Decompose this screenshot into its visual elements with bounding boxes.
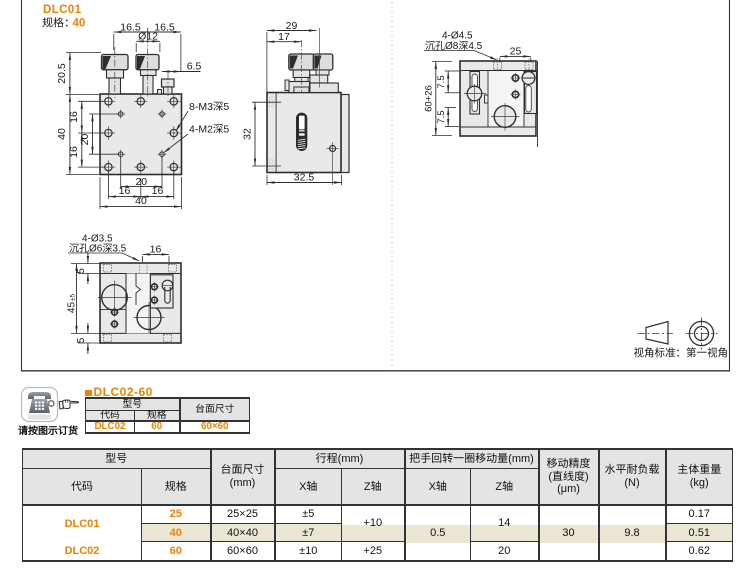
svg-text:40: 40 [56, 128, 68, 140]
svg-text:16: 16 [150, 244, 162, 256]
svg-text:16: 16 [152, 185, 164, 197]
svg-text:规格：: 规格： [42, 17, 75, 30]
svg-text:20.5: 20.5 [56, 63, 68, 84]
svg-text:Ø12: Ø12 [138, 30, 158, 42]
svg-text:7.5: 7.5 [436, 110, 447, 123]
svg-text:视角标准：第一视角: 视角标准：第一视角 [634, 347, 729, 360]
svg-text:±5: ±5 [70, 294, 77, 302]
svg-text:7.5: 7.5 [436, 75, 447, 88]
svg-text:40: 40 [73, 17, 86, 29]
svg-text:4-Ø4.5: 4-Ø4.5 [442, 31, 473, 42]
svg-text:17: 17 [278, 31, 290, 43]
svg-text:45: 45 [66, 302, 77, 314]
svg-text:40: 40 [135, 195, 147, 207]
svg-text:5: 5 [76, 268, 87, 274]
svg-text:25: 25 [510, 46, 522, 58]
svg-text:32: 32 [241, 128, 253, 140]
svg-text:16: 16 [119, 185, 131, 197]
svg-text:4-M2深5: 4-M2深5 [189, 124, 229, 136]
svg-text:20: 20 [79, 134, 91, 146]
svg-text:5: 5 [76, 337, 87, 343]
svg-text:32.5: 32.5 [294, 172, 315, 184]
svg-text:6.5: 6.5 [187, 61, 202, 73]
svg-text:60+26: 60+26 [423, 85, 434, 112]
svg-text:20: 20 [135, 176, 147, 188]
svg-text:16: 16 [68, 111, 80, 123]
svg-text:8-M3深5: 8-M3深5 [189, 101, 229, 113]
svg-text:16: 16 [68, 146, 80, 158]
svg-text:DLC01: DLC01 [43, 4, 82, 16]
